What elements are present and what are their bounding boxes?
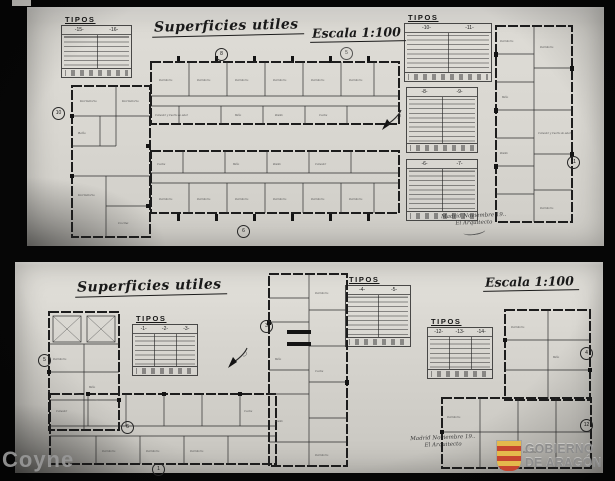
floor-plan-top-left: Dormitorio Dormitorio Baño Dormitorio Co…: [70, 84, 152, 239]
plan-number-circle: 11: [567, 156, 580, 169]
room-label: Pasillo: [499, 152, 508, 155]
col-header: -11-: [448, 25, 491, 31]
floor-plan-top-right: Dormitorio Dormitorio Baño Comedor y Cua…: [494, 24, 574, 224]
room-label: Comedor y Cuarto de estar: [538, 132, 572, 135]
coyne-watermark: Coyne: [2, 447, 74, 473]
plan-number-circle: 5: [38, 354, 51, 367]
room-label: Pasillo: [274, 420, 283, 423]
room-label: Cocina: [315, 370, 324, 373]
room-label: Cocina: [244, 410, 253, 413]
plan-number-circle: 12: [580, 419, 593, 432]
table-total-row: [346, 337, 410, 346]
room-label: Dormitorio: [539, 46, 554, 49]
table-title: TIPOS: [408, 13, 492, 22]
room-label: Comedor: [315, 163, 327, 166]
room-label: Dormitorio: [499, 40, 514, 43]
table-total-row: [62, 68, 131, 77]
sheet-title-handwritten: Superficies utiles: [75, 276, 228, 297]
tipos-table-8-9: -8- -9-: [406, 87, 478, 153]
room-label: Baño: [501, 96, 509, 99]
room-label: Cocina: [319, 114, 328, 117]
table-rows: [346, 295, 410, 337]
table-title: TIPOS: [136, 314, 198, 323]
floor-plan-center-top: Dormitorio Dormitorio Dormitorio Dormito…: [149, 56, 401, 136]
col-header: -6-: [407, 161, 442, 167]
table-total-row: [405, 72, 491, 81]
col-header: -1-: [133, 326, 154, 332]
room-label: Dormitorio: [196, 198, 211, 201]
table-total-row: [407, 143, 477, 152]
gobierno-de-aragon-watermark: GOBIERNO DE ARAGÓN: [496, 440, 608, 472]
table-total-row: [133, 366, 197, 375]
table-grid: -6- -7-: [406, 159, 478, 221]
col-header: -9-: [442, 89, 477, 95]
table-title: TIPOS: [349, 275, 411, 284]
col-header: -8-: [407, 89, 442, 95]
table-rows: [62, 35, 131, 68]
table-column-headers: -8- -9-: [407, 88, 477, 97]
north-arrow-icon: [225, 345, 251, 371]
room-label: Comedor y Cuarto de estar: [155, 114, 189, 117]
tipos-table-1-2-3: TIPOS -1- -2- -3-: [132, 314, 198, 376]
room-label: Dormitorio: [121, 99, 139, 103]
table-grid: -1- -2- -3-: [132, 324, 198, 376]
room-label: Dormitorio: [272, 198, 287, 201]
plan-number-circle: 8: [215, 48, 228, 61]
room-label: Dormitorio: [77, 193, 95, 197]
table-rows: [133, 334, 197, 366]
plan-number-circle: 6: [237, 225, 250, 238]
table-title: TIPOS: [65, 15, 132, 24]
plan-number-circle: 10: [52, 107, 65, 120]
aragon-shield-icon: [496, 440, 522, 472]
tipos-table-6-7: -6- -7-: [406, 159, 478, 221]
col-header: -4-: [346, 287, 378, 293]
room-label: Cocina: [118, 221, 129, 225]
room-label: Dormitorio: [234, 79, 249, 82]
aragon-text-line1: GOBIERNO: [525, 442, 602, 456]
room-label: Dormitorio: [234, 198, 249, 201]
room-label: Dormitorio: [539, 207, 554, 210]
room-label: Dormitorio: [348, 198, 363, 201]
aragon-text-line2: DE ARAGÓN: [525, 456, 602, 470]
aragon-text: GOBIERNO DE ARAGÓN: [525, 442, 602, 470]
signature-squiggle: [463, 226, 486, 236]
room-label: Baño: [88, 386, 96, 389]
floor-plan-bottom-center: Dormitorio Baño Cocina Pasillo Dormitori…: [267, 272, 349, 468]
room-label: Baño: [77, 131, 86, 135]
room-label: Dormitorio: [446, 416, 461, 419]
room-label: Dormitorio: [145, 450, 160, 453]
table-rows: [407, 169, 477, 211]
room-label: Dormitorio: [314, 292, 329, 295]
tipos-table-15-16: TIPOS -15- -16-: [61, 15, 132, 78]
col-header: -5-: [378, 287, 410, 293]
room-label: Dormitorio: [310, 79, 325, 82]
sheet-top: TIPOS -15- -16- Superficies utiles Escal…: [27, 7, 604, 246]
sheet-title-handwritten: Superficies utiles: [152, 16, 305, 37]
table-column-headers: -6- -7-: [407, 160, 477, 169]
room-label: Baño: [232, 163, 240, 166]
scale-note-handwritten: Escala 1:100: [310, 24, 406, 43]
table-rows: [405, 33, 491, 72]
room-label: Dormitorio: [272, 79, 287, 82]
table-column-headers: -15- -16-: [62, 26, 131, 35]
room-label: Dormitorio: [196, 79, 211, 82]
room-label: Dormitorio: [158, 198, 173, 201]
room-label: Dormitorio: [52, 358, 67, 361]
room-label: Dormitorio: [310, 198, 325, 201]
room-label: Dormitorio: [510, 326, 525, 329]
table-column-headers: -10- -11-: [405, 24, 491, 33]
plan-number-circle: 3: [260, 320, 273, 333]
table-column-headers: -1- -2- -3-: [133, 325, 197, 334]
room-label: Dormitorio: [348, 79, 363, 82]
room-label: Dormitorio: [158, 79, 173, 82]
col-header: -10-: [405, 25, 448, 31]
plan-number-circle: 4: [580, 347, 593, 360]
scale-note-handwritten: Escala 1:100: [483, 273, 579, 292]
room-label: Dormitorio: [101, 450, 116, 453]
room-label: Pasillo: [274, 114, 283, 117]
photo-of-architectural-plans: TIPOS -15- -16- Superficies utiles Escal…: [0, 0, 615, 481]
plan-number-circle: 5: [340, 47, 353, 60]
room-label: Dormitorio: [314, 454, 329, 457]
plan-number-circle: 6: [121, 421, 134, 434]
table-grid: -8- -9-: [406, 87, 478, 153]
table-column-headers: -4- -5-: [346, 286, 410, 295]
table-grid: -4- -5-: [345, 285, 411, 347]
col-header: -15-: [62, 27, 97, 33]
room-label: Baño: [274, 358, 282, 361]
table-grid: -15- -16-: [61, 25, 132, 78]
room-label: Dormitorio: [189, 450, 204, 453]
room-label: Pasillo: [272, 163, 281, 166]
room-label: Dormitorio: [79, 99, 97, 103]
table-grid: -10- -11-: [404, 23, 492, 82]
room-label: Cocina: [157, 163, 166, 166]
tipos-table-4-5: TIPOS -4- -5-: [345, 275, 411, 347]
tipos-table-10-11: TIPOS -10- -11-: [404, 13, 492, 82]
col-header: -3-: [176, 326, 197, 332]
plan-number-circle: 1: [152, 463, 165, 476]
paper-scrap-top-left: [12, 0, 31, 6]
col-header: -2-: [154, 326, 175, 332]
floor-plan-center-bottom: Cocina Baño Pasillo Comedor Dormitorio D…: [149, 143, 401, 223]
room-label: Baño: [552, 356, 560, 359]
room-label: Baño: [234, 114, 242, 117]
table-rows: [407, 97, 477, 143]
col-header: -16-: [97, 27, 132, 33]
col-header: -7-: [442, 161, 477, 167]
